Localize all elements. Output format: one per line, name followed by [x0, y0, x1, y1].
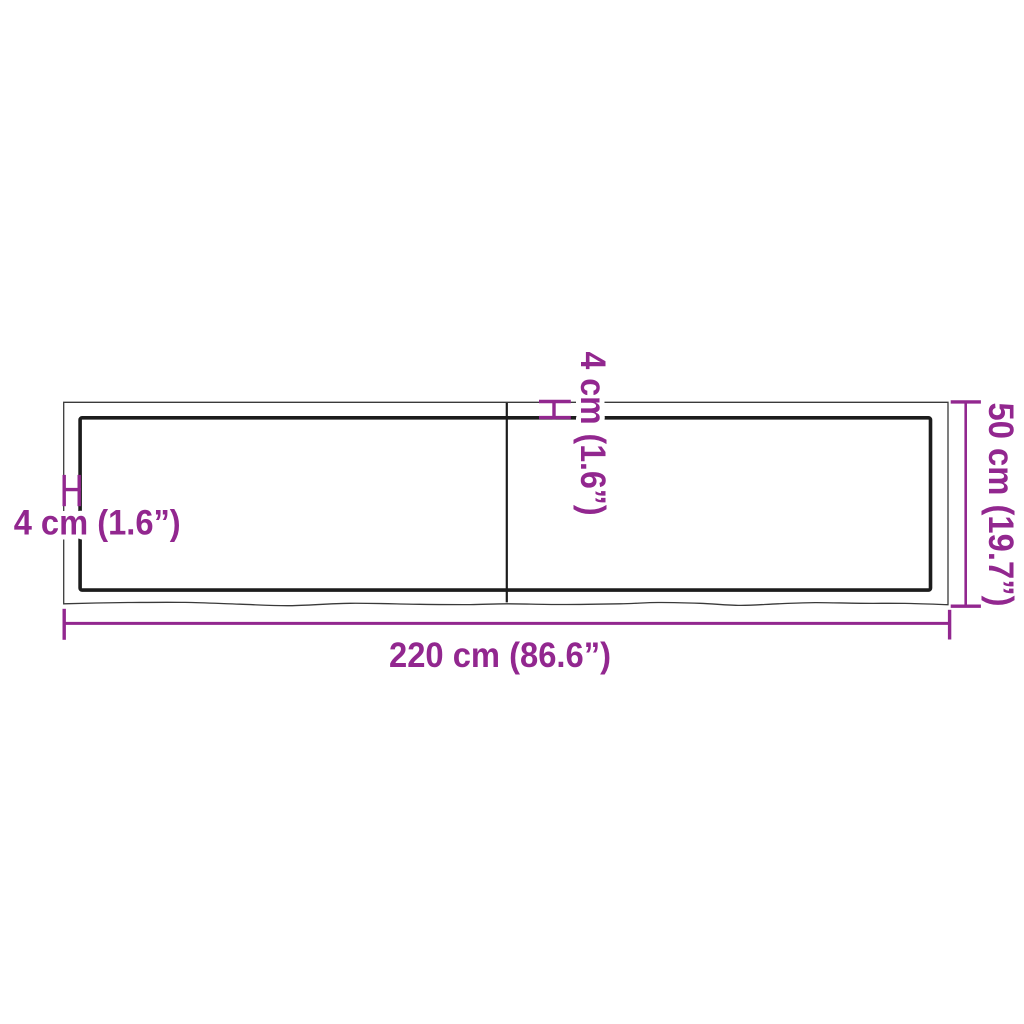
- svg-text:50 cm (19.7”): 50 cm (19.7”): [981, 403, 1020, 607]
- svg-text:4 cm (1.6”): 4 cm (1.6”): [573, 352, 612, 516]
- svg-text:4 cm (1.6”): 4 cm (1.6”): [14, 503, 181, 542]
- svg-text:220 cm (86.6”): 220 cm (86.6”): [389, 636, 611, 675]
